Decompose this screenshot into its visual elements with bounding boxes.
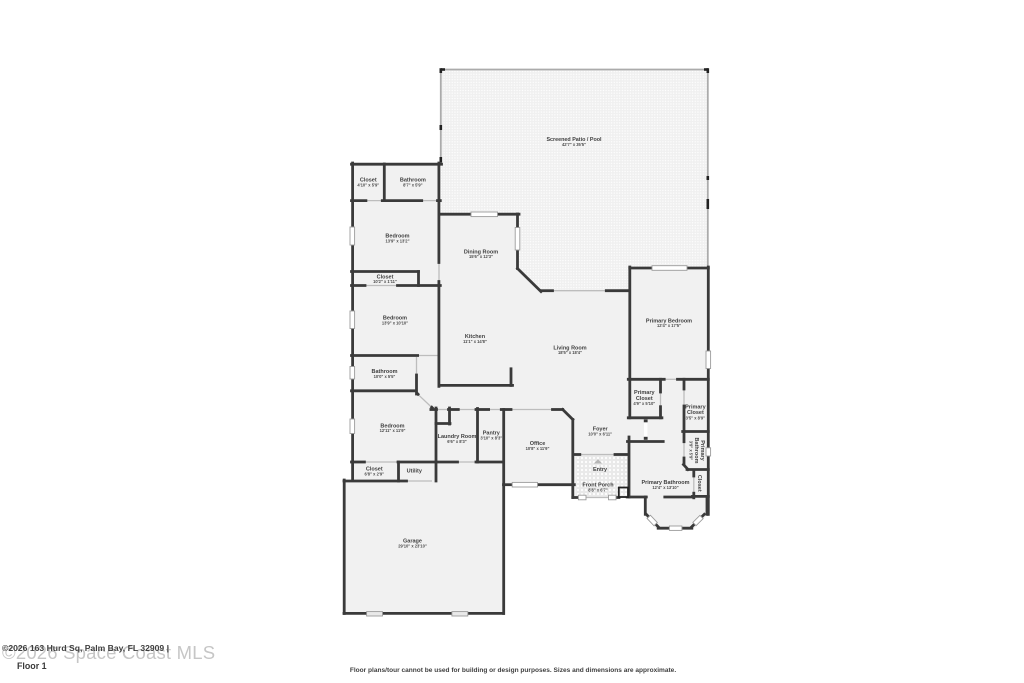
svg-text:42'7" x 35'5": 42'7" x 35'5" — [562, 142, 586, 147]
svg-text:8'8" x 6'7": 8'8" x 6'7" — [588, 488, 608, 493]
svg-text:29'10" x 23'10": 29'10" x 23'10" — [398, 544, 427, 549]
svg-text:Closet: Closet — [696, 475, 702, 492]
svg-text:Utility: Utility — [407, 469, 423, 475]
svg-text:13'9" x 13'2": 13'9" x 13'2" — [385, 238, 409, 243]
svg-text:4'9" x 5'10": 4'9" x 5'10" — [633, 401, 655, 406]
svg-text:11'1" x 14'8": 11'1" x 14'8" — [463, 339, 487, 344]
svg-text:12'4" x 17'5": 12'4" x 17'5" — [657, 323, 681, 328]
svg-text:10'8" x 11'9": 10'8" x 11'9" — [526, 446, 550, 451]
svg-text:10'0" x 6'11": 10'0" x 6'11" — [588, 431, 612, 436]
svg-text:3'9" x 5'9": 3'9" x 5'9" — [689, 441, 694, 461]
svg-text:Floor 1: Floor 1 — [17, 661, 47, 671]
svg-text:10'0" x 5'5": 10'0" x 5'5" — [374, 374, 396, 379]
svg-text:15'6" x 12'3": 15'6" x 12'3" — [469, 254, 493, 259]
svg-text:©2026 163 Hurd Sq, Palm Bay, F: ©2026 163 Hurd Sq, Palm Bay, FL 32909 | — [2, 643, 169, 653]
svg-text:10'2" x 1'11": 10'2" x 1'11" — [373, 279, 397, 284]
svg-text:12'4" x 13'10": 12'4" x 13'10" — [652, 485, 678, 490]
svg-text:4'10" x 5'9": 4'10" x 5'9" — [357, 182, 379, 187]
svg-text:8'7" x 5'9": 8'7" x 5'9" — [403, 182, 423, 187]
svg-text:12'11" x 11'9": 12'11" x 11'9" — [380, 428, 406, 433]
svg-text:13'9" x 10'10": 13'9" x 10'10" — [382, 321, 408, 326]
svg-text:3'10" x 8'3": 3'10" x 8'3" — [480, 435, 502, 440]
svg-text:Entry: Entry — [593, 467, 608, 473]
svg-text:Floor plans/tour cannot be use: Floor plans/tour cannot be used for buil… — [350, 667, 676, 674]
svg-text:6'8" x 2'9": 6'8" x 2'9" — [365, 471, 385, 476]
svg-text:6'6" x 8'3": 6'6" x 8'3" — [447, 439, 467, 444]
svg-text:Primary: Primary — [699, 440, 705, 461]
svg-text:18'5" x 18'4": 18'5" x 18'4" — [558, 350, 582, 355]
svg-text:3'5" x 8'9": 3'5" x 8'9" — [686, 415, 706, 420]
